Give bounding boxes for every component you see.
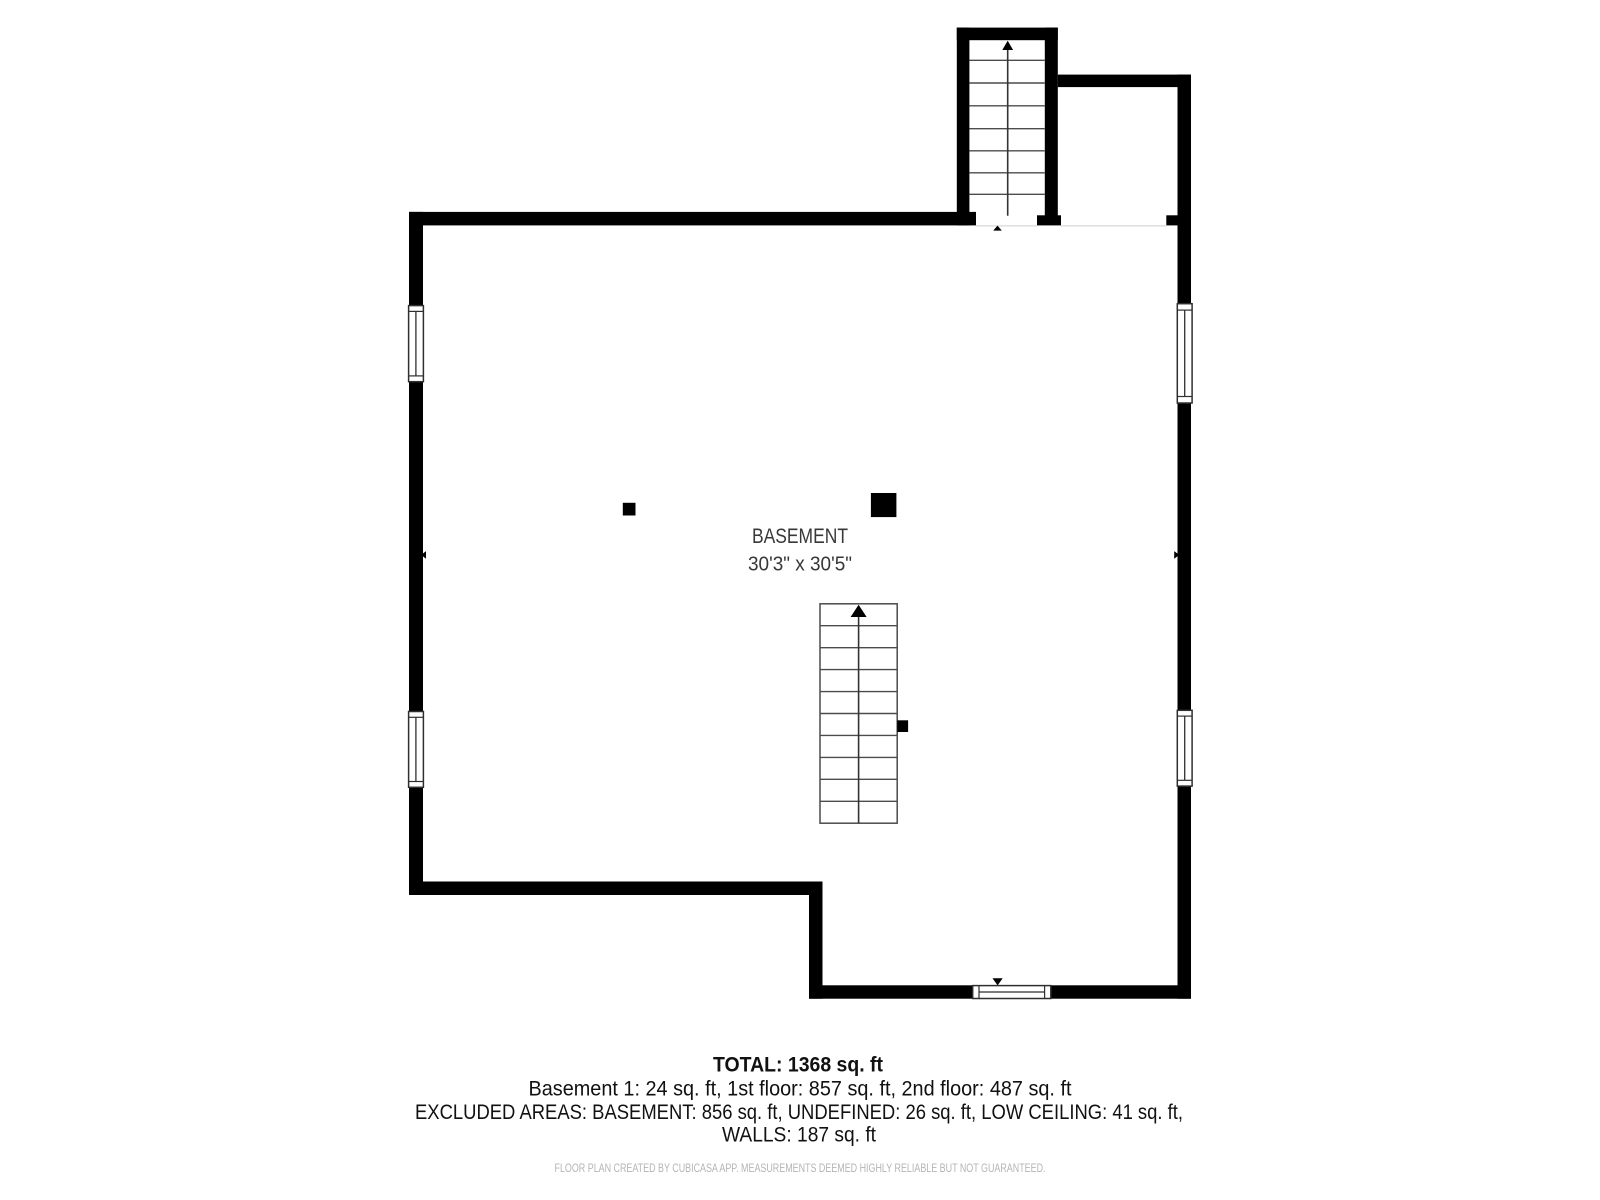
svg-text:FLOOR PLAN CREATED BY CUBICASA: FLOOR PLAN CREATED BY CUBICASA APP. MEAS…	[555, 1161, 1046, 1175]
svg-text:BASEMENT: BASEMENT	[752, 524, 848, 548]
svg-text:WALLS: 187 sq. ft: WALLS: 187 sq. ft	[722, 1124, 876, 1147]
svg-text:30'3" x 30'5": 30'3" x 30'5"	[748, 552, 852, 575]
svg-text:EXCLUDED AREAS: BASEMENT: 856: EXCLUDED AREAS: BASEMENT: 856 sq. ft, UN…	[415, 1101, 1183, 1124]
svg-text:Basement 1: 24 sq. ft, 1st flo: Basement 1: 24 sq. ft, 1st floor: 857 sq…	[529, 1078, 1072, 1101]
svg-text:TOTAL: 1368 sq. ft: TOTAL: 1368 sq. ft	[713, 1054, 883, 1077]
